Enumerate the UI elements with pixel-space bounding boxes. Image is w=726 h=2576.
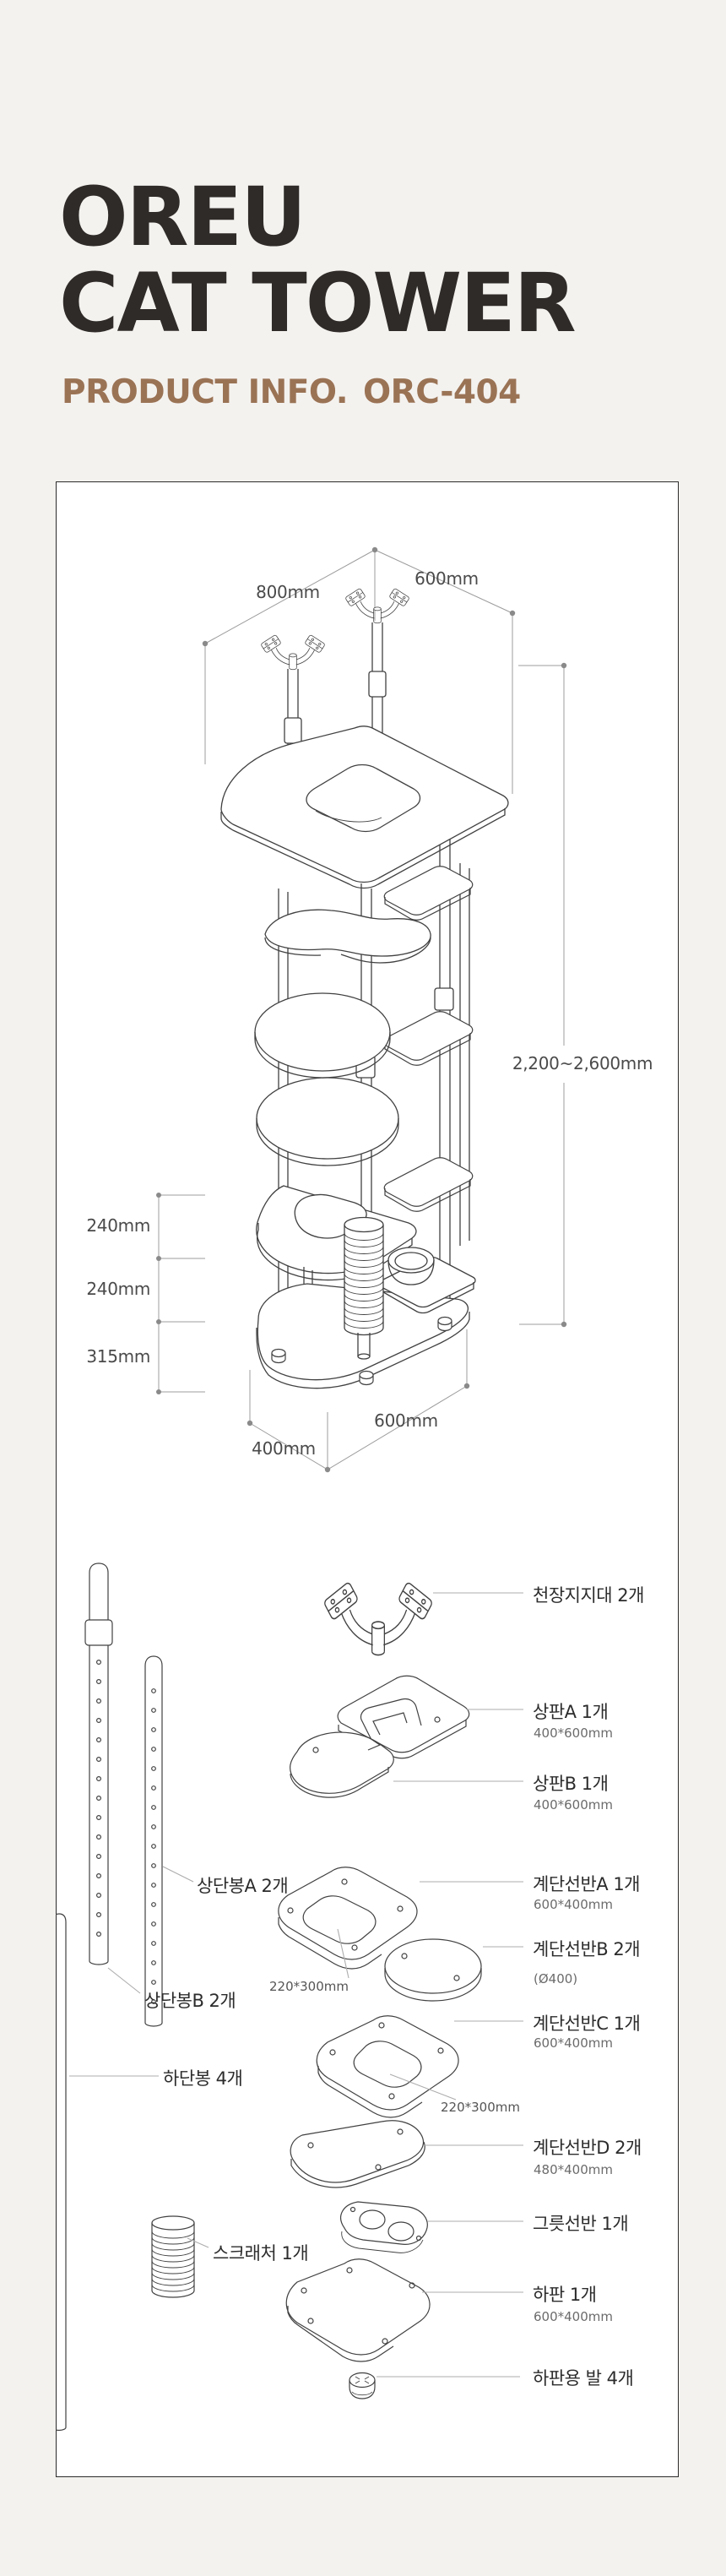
part-label-step-shelf-a: 계단선반A 1개 [533,1871,640,1896]
part-size-top-panel-b: 400*600mm [534,1797,613,1812]
part-size-step-shelf-d: 480*400mm [534,2162,613,2177]
part-size-step-shelf-a: 600*400mm [534,1897,613,1912]
bottom-foot-part [349,2373,375,2399]
dim-base-width-label: 600mm [368,1410,444,1431]
tower-line-art [56,481,679,2477]
product-code: ORC-404 [363,373,521,411]
step-shelf-b-part [385,1939,481,2001]
dim-gap1-label: 240mm [74,1215,150,1236]
dim-top-width-label: 800mm [250,582,326,602]
part-size-step-shelf-c: 600*400mm [534,2035,613,2051]
ceiling-bracket-part [323,1582,433,1655]
part-label-top-panel-a: 상판A 1개 [533,1698,608,1724]
part-label-upper-pole-b: 상단봉B 2개 [144,1987,236,2013]
bottom-panel-part [286,2259,430,2361]
part-label-step-shelf-d: 계단선반D 2개 [533,2134,642,2160]
annotation-shelf-a-size: 220*300mm [269,1979,349,1994]
parts-drawings [56,1563,481,2431]
part-label-step-shelf-b: 계단선반B 2개 [533,1936,640,1961]
dim-gap2-label: 240mm [74,1279,150,1299]
product-subtitle: PRODUCT INFO.ORC-404 [62,373,521,411]
dim-top-depth-label: 600mm [409,568,485,589]
part-size-bottom-panel: 600*400mm [534,2309,613,2324]
part-label-scratcher: 스크래처 1개 [213,2240,308,2265]
part-label-upper-pole-a: 상단봉A 2개 [197,1872,288,1898]
part-label-bottom-foot: 하판용 발 4개 [533,2365,633,2390]
subtitle-label: PRODUCT INFO. [62,373,348,411]
part-label-top-panel-b: 상판B 1개 [533,1770,608,1796]
dim-gap3-label: 315mm [74,1346,150,1367]
part-size-top-panel-a: 400*600mm [534,1725,613,1741]
dim-base-depth-label: 400mm [246,1438,322,1459]
part-size-step-shelf-b: (Ø400) [534,1971,577,1986]
lower-pole-part [56,1914,66,2431]
step-shelf-c-part [317,2016,458,2117]
scratcher-part [152,2216,194,2297]
part-label-lower-pole: 하단봉 4개 [163,2065,242,2090]
page-title: OREU CAT TOWER [59,174,575,346]
title-line1: OREU [59,170,305,264]
dim-height-label: 2,200~2,600mm [505,1053,660,1073]
part-label-bottom-panel: 하판 1개 [533,2281,597,2307]
bowl-shelf-part [341,2202,428,2253]
tower-drawing [221,588,508,1388]
part-label-bowl-shelf: 그릇선반 1개 [533,2210,628,2236]
upper-pole-b-part [145,1656,162,2026]
title-line2: CAT TOWER [59,256,575,351]
annotation-shelf-c-size: 220*300mm [441,2100,520,2115]
part-label-ceiling-bracket: 천장지지대 2개 [533,1582,644,1607]
upper-pole-a-part [85,1563,112,1965]
part-label-step-shelf-c: 계단선반C 1개 [533,2010,640,2035]
step-shelf-d-part [290,2121,425,2187]
